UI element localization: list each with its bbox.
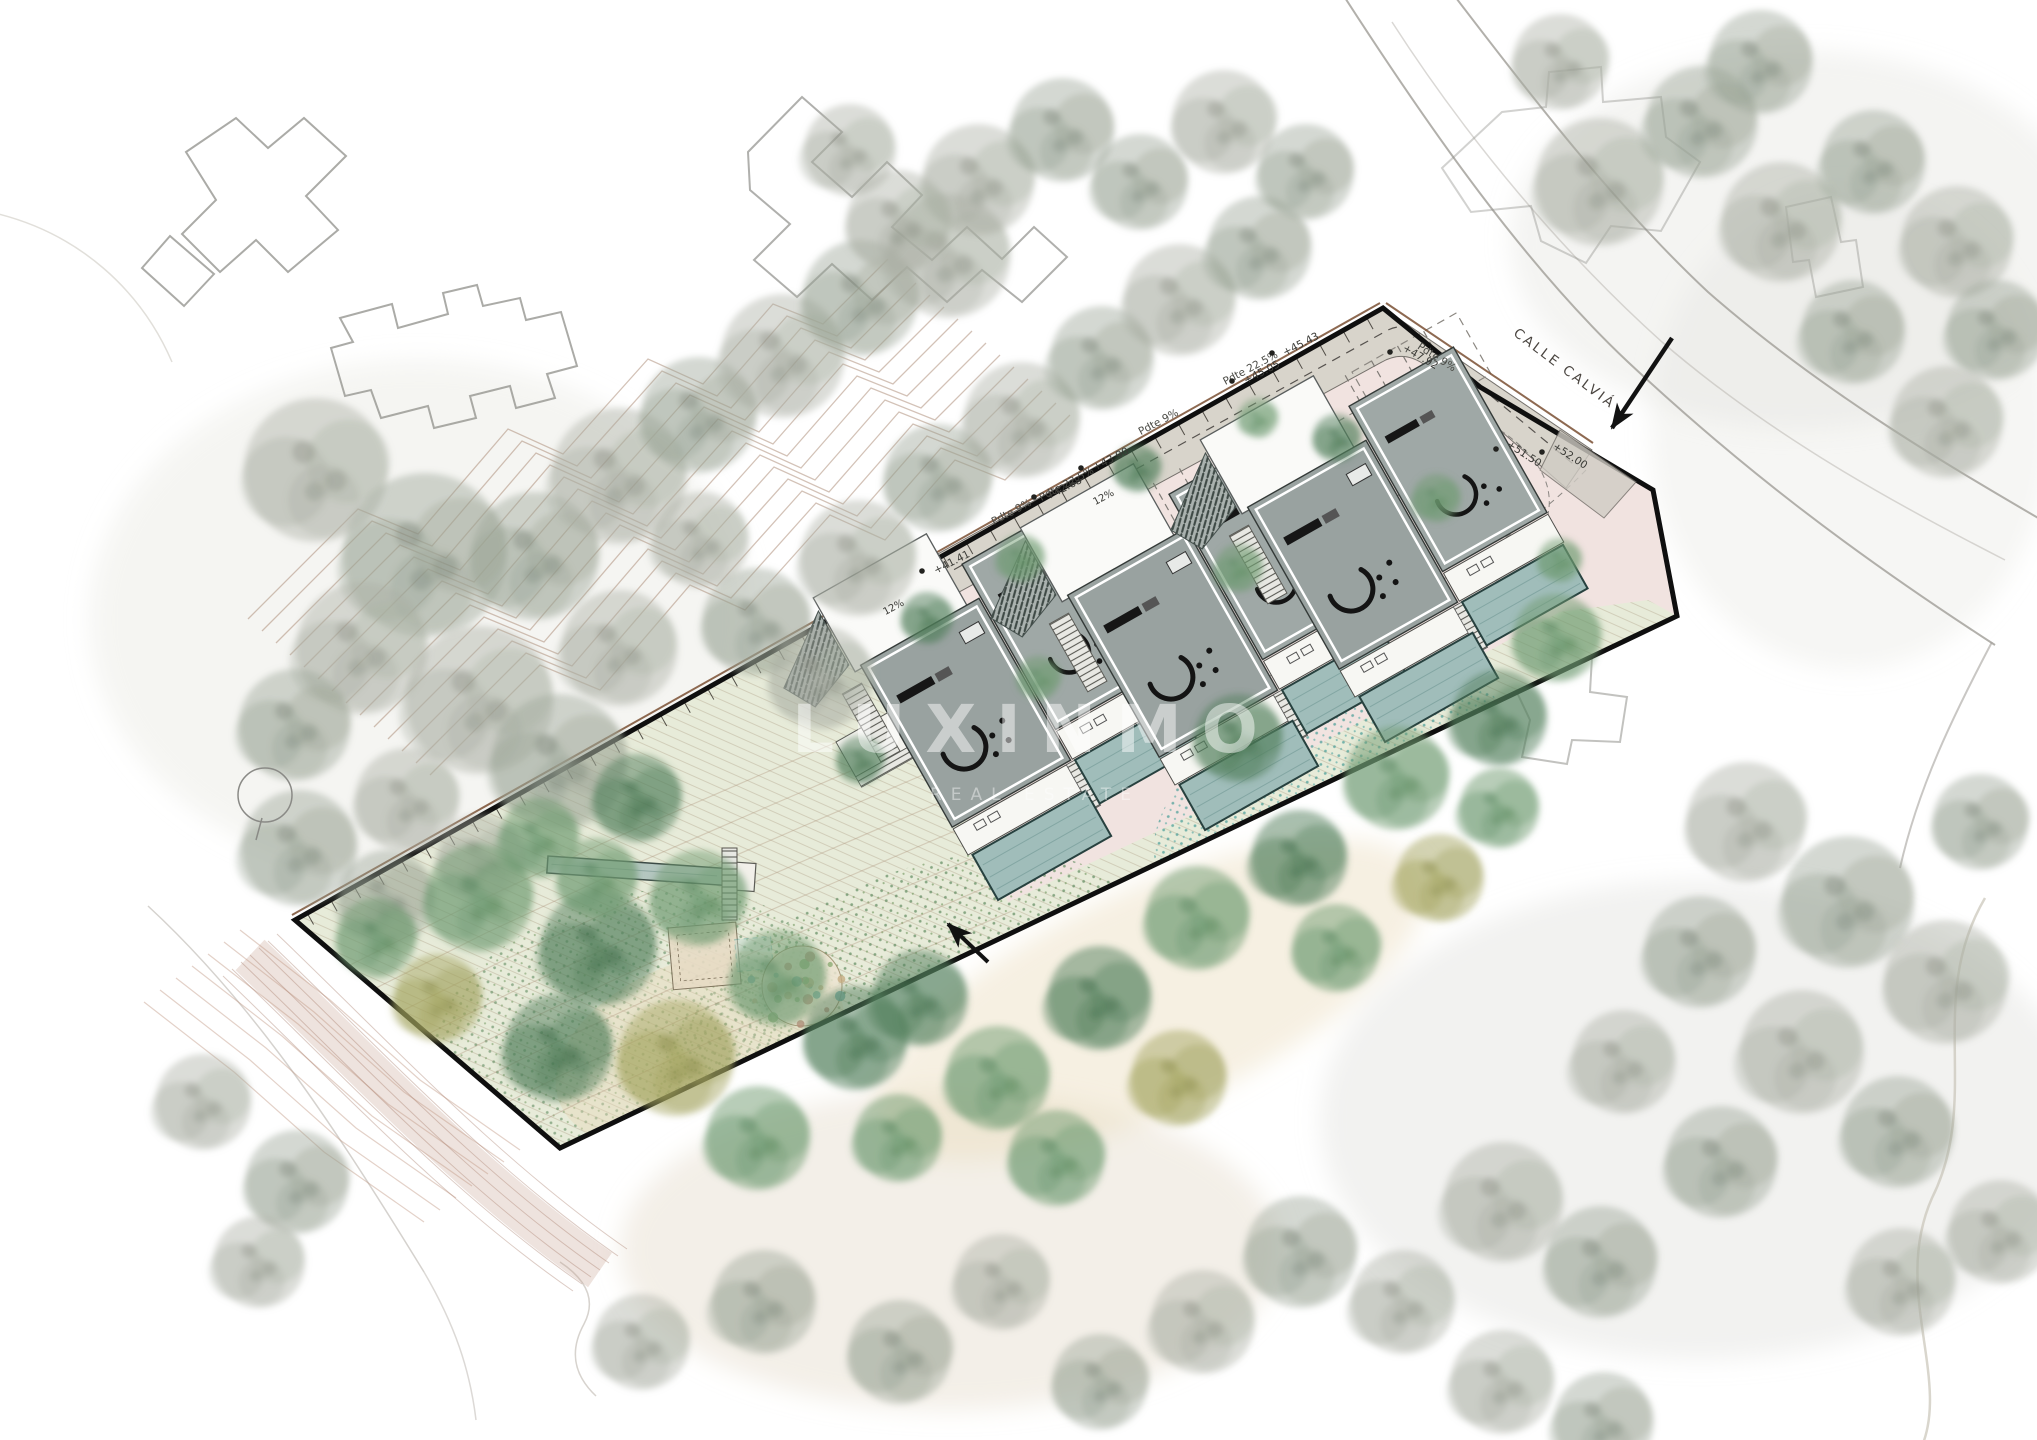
mosaic-dot [828,962,833,967]
elevation-marker [1031,494,1037,500]
neighbor-building [142,236,214,306]
tree [1455,768,1539,848]
path-bottom-left [424,1272,476,1420]
site-plan: CALLE CALVIÁ Pdte 9% Pdte 22.5% Pdte 9% … [0,0,2037,1440]
elevation-marker [919,568,925,574]
tree [591,1294,690,1390]
tree [1777,836,1914,968]
elevation-marker [1269,350,1275,356]
tree [1511,14,1610,110]
tree [209,1216,305,1308]
neighbor-building [182,118,346,272]
tree [1446,1330,1554,1434]
tree [1931,774,2030,870]
tree [1346,1250,1455,1354]
tree [151,1054,252,1150]
elevation-marker [1493,446,1499,452]
tree [1704,10,1813,114]
tree [799,104,896,196]
tree [1391,834,1484,922]
site-plan-canvas: CALLE CALVIÁ Pdte 9% Pdte 22.5% Pdte 9% … [0,0,2037,1440]
tree [1684,762,1808,882]
elevation-marker [1229,378,1235,384]
watermark-brand: LUXINMO [792,691,1278,768]
elevation-marker [1078,465,1084,471]
mosaic-dot [838,975,846,983]
path-top-left [0,212,172,362]
tree [1549,1372,1654,1440]
elevation-marker [1539,449,1545,455]
watermark-tagline: REAL ESTATE [930,785,1140,805]
elevation-marker [1387,349,1393,355]
tree [1247,810,1348,906]
tree [702,1086,810,1190]
